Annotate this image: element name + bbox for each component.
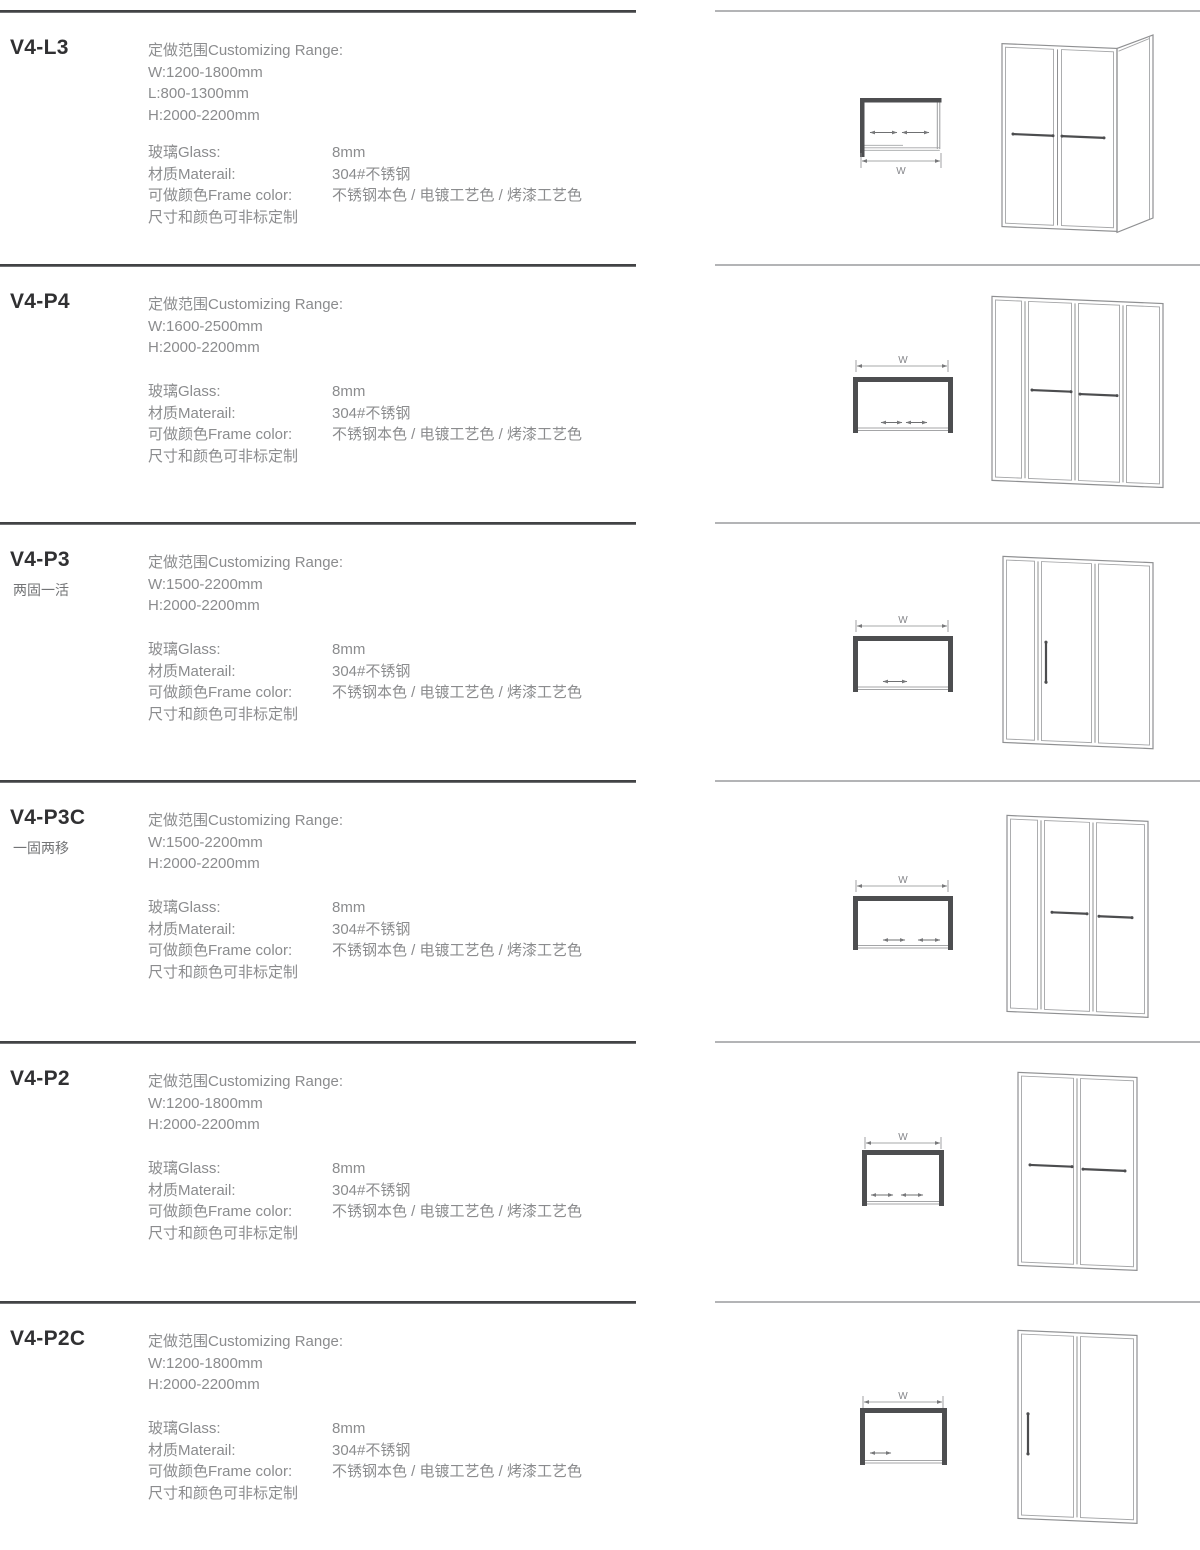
door-handle [1051,911,1134,919]
plan-door-track [865,1461,942,1464]
door-panel [1045,820,1090,1011]
plan-fixed-glass [937,103,940,150]
model-name: V4-P2C [10,1327,85,1351]
door-handle [1026,1412,1029,1455]
plan-view: W [845,352,975,442]
w-dimension-label: W [898,615,908,626]
door-panel [1079,304,1120,483]
spec-value: 8mm [332,899,365,916]
spec-row: 玻璃Glass:8mm [148,639,582,661]
spec-label: 材质Materail: [148,661,332,683]
customizing-range-label: 定做范围Customizing Range: [148,552,343,574]
dimension-range: H:2000-2200mm [148,595,343,617]
dimension-range: H:2000-2200mm [148,853,343,875]
front-door-frame [1007,815,1148,1017]
section-divider-left [0,10,636,13]
spec-row: 玻璃Glass:8mm [148,381,582,403]
front-door-frame [1018,1330,1137,1523]
front-door-frame [1002,44,1117,232]
product-section-v4-p2c: V4-P2C 定做范围Customizing Range: W:1200-180… [0,1301,1200,1550]
spec-row: 玻璃Glass:8mm [148,897,582,919]
customizing-range-label: 定做范围Customizing Range: [148,40,343,62]
w-dimension-label: W [898,1132,908,1143]
dimension-range: W:1500-2200mm [148,574,343,596]
elevation-view [1008,1323,1143,1528]
dimension-range: W:1200-1800mm [148,1093,343,1115]
door-panel [1022,1076,1074,1264]
spec-value: 不锈钢本色 / 电镀工艺色 / 烤漆工艺色 [332,1463,582,1480]
plan-wall-top [860,1408,947,1413]
fixed-panel [1011,819,1038,1009]
spec-row: 可做颜色Frame color:不锈钢本色 / 电镀工艺色 / 烤漆工艺色 [148,940,582,962]
plan-wall-left [853,896,858,950]
product-section-v4-p3c: V4-P3C 一固两移 定做范围Customizing Range: W:150… [0,780,1200,1041]
spec-value: 8mm [332,383,365,400]
spec-label: 尺寸和颜色可非标定制 [148,207,332,229]
plan-view: W [845,1128,975,1218]
model-subtitle: 两固一活 [13,580,69,600]
door-panel [1081,1337,1134,1520]
front-door-frame [1003,556,1153,748]
section-divider-right [715,264,1200,266]
w-dimension-label: W [896,166,906,177]
plan-wall-top [860,98,942,103]
spec-label: 可做颜色Frame color: [148,1201,332,1223]
door-handle [1044,641,1047,684]
spec-row: 材质Materail:304#不锈钢 [148,919,582,941]
dimension-range: W:1600-2500mm [148,316,343,338]
spec-label: 材质Materail: [148,164,332,186]
spec-row: 可做颜色Frame color:不锈钢本色 / 电镀工艺色 / 烤漆工艺色 [148,185,582,207]
spec-row: 可做颜色Frame color:不锈钢本色 / 电镀工艺色 / 烤漆工艺色 [148,682,582,704]
spec-value: 不锈钢本色 / 电镀工艺色 / 烤漆工艺色 [332,684,582,701]
customizing-range-label: 定做范围Customizing Range: [148,1331,343,1353]
dimension-range: H:2000-2200mm [148,1114,343,1136]
spec-table: 玻璃Glass:8mm 材质Materail:304#不锈钢 可做颜色Frame… [148,1418,582,1504]
customizing-range-block: 定做范围Customizing Range: W:1200-1800mm L:8… [148,40,343,126]
spec-value: 8mm [332,641,365,658]
spec-label: 尺寸和颜色可非标定制 [148,704,332,726]
plan-wall-left [853,636,858,692]
spec-value: 不锈钢本色 / 电镀工艺色 / 烤漆工艺色 [332,426,582,443]
spec-table: 玻璃Glass:8mm 材质Materail:304#不锈钢 可做颜色Frame… [148,142,582,228]
customizing-range-block: 定做范围Customizing Range: W:1500-2200mm H:2… [148,810,343,875]
spec-label: 可做颜色Frame color: [148,424,332,446]
spec-row: 玻璃Glass:8mm [148,142,582,164]
spec-value: 不锈钢本色 / 电镀工艺色 / 烤漆工艺色 [332,187,582,204]
spec-value: 8mm [332,1160,365,1177]
elevation-view [988,25,1160,240]
plan-wall-top [853,377,953,382]
spec-table: 玻璃Glass:8mm 材质Materail:304#不锈钢 可做颜色Frame… [148,639,582,725]
spec-value: 304#不锈钢 [332,166,410,183]
plan-view: W [845,85,975,177]
spec-label: 尺寸和颜色可非标定制 [148,1483,332,1505]
spec-label: 材质Materail: [148,919,332,941]
dimension-range: W:1200-1800mm [148,1353,343,1375]
spec-row: 尺寸和颜色可非标定制 [148,1223,582,1245]
section-divider-left [0,1041,636,1044]
dimension-range: W:1200-1800mm [148,62,343,84]
plan-door-track [858,428,948,431]
spec-table: 玻璃Glass:8mm 材质Materail:304#不锈钢 可做颜色Frame… [148,1158,582,1244]
dimension-range: L:800-1300mm [148,83,343,105]
spec-row: 尺寸和颜色可非标定制 [148,446,582,468]
plan-wall-top [853,896,953,901]
plan-wall-left [862,1150,867,1206]
spec-value: 304#不锈钢 [332,1442,410,1459]
spec-value: 304#不锈钢 [332,921,410,938]
plan-door-track [867,1202,939,1205]
plan-wall-left [860,98,865,157]
spec-label: 玻璃Glass: [148,142,332,164]
spec-label: 尺寸和颜色可非标定制 [148,962,332,984]
product-catalog-page: V4-L3 定做范围Customizing Range: W:1200-1800… [0,0,1200,1550]
w-dimension-label: W [898,875,908,886]
spec-value: 8mm [332,1420,365,1437]
spec-label: 可做颜色Frame color: [148,1461,332,1483]
plan-wall-right [948,636,953,692]
elevation-view [1008,1063,1143,1275]
plan-wall-left [860,1408,865,1465]
fixed-panel [1127,306,1160,484]
spec-value: 8mm [332,144,365,161]
front-door-frame [992,296,1163,487]
plan-wall-right [948,896,953,950]
fixed-panel [1007,560,1035,740]
section-divider-left [0,522,636,525]
customizing-range-block: 定做范围Customizing Range: W:1200-1800mm H:2… [148,1071,343,1136]
door-handle [1012,132,1106,139]
door-panel [1042,562,1092,743]
customizing-range-block: 定做范围Customizing Range: W:1200-1800mm H:2… [148,1331,343,1396]
spec-table: 玻璃Glass:8mm 材质Materail:304#不锈钢 可做颜色Frame… [148,897,582,983]
spec-row: 材质Materail:304#不锈钢 [148,403,582,425]
spec-row: 可做颜色Frame color:不锈钢本色 / 电镀工艺色 / 烤漆工艺色 [148,424,582,446]
section-divider-right [715,1301,1200,1303]
model-name: V4-P3 [10,548,70,572]
spec-label: 玻璃Glass: [148,1418,332,1440]
spec-label: 玻璃Glass: [148,381,332,403]
customizing-range-label: 定做范围Customizing Range: [148,1071,343,1093]
customizing-range-block: 定做范围Customizing Range: W:1500-2200mm H:2… [148,552,343,617]
plan-door-track [858,946,948,949]
dimension-range: H:2000-2200mm [148,1374,343,1396]
model-name: V4-P2 [10,1067,70,1091]
section-divider-right [715,522,1200,524]
w-dimension-label: W [898,355,908,366]
spec-row: 尺寸和颜色可非标定制 [148,207,582,229]
product-section-v4-p2: V4-P2 定做范围Customizing Range: W:1200-1800… [0,1041,1200,1301]
model-name: V4-L3 [10,36,69,60]
side-glass-panel [1117,35,1153,232]
spec-row: 玻璃Glass:8mm [148,1418,582,1440]
elevation-view [997,806,1152,1024]
model-name: V4-P4 [10,290,70,314]
spec-label: 可做颜色Frame color: [148,185,332,207]
product-section-v4-p3: V4-P3 两固一活 定做范围Customizing Range: W:1500… [0,522,1200,780]
plan-view: W [845,610,975,700]
spec-label: 玻璃Glass: [148,1158,332,1180]
section-divider-left [0,1301,636,1304]
customizing-range-label: 定做范围Customizing Range: [148,810,343,832]
spec-row: 尺寸和颜色可非标定制 [148,1483,582,1505]
plan-door-track [858,687,948,690]
section-divider-right [715,780,1200,782]
spec-row: 可做颜色Frame color:不锈钢本色 / 电镀工艺色 / 烤漆工艺色 [148,1461,582,1483]
customizing-range-block: 定做范围Customizing Range: W:1600-2500mm H:2… [148,294,343,359]
dimension-range: H:2000-2200mm [148,337,343,359]
model-name: V4-P3C [10,806,85,830]
spec-value: 304#不锈钢 [332,1182,410,1199]
spec-row: 材质Materail:304#不锈钢 [148,164,582,186]
door-panel [1022,1334,1074,1517]
plan-view: W [845,1388,975,1480]
customizing-range-label: 定做范围Customizing Range: [148,294,343,316]
spec-label: 材质Materail: [148,1180,332,1202]
plan-view: W [845,870,975,960]
spec-row: 材质Materail:304#不锈钢 [148,1180,582,1202]
plan-wall-right [939,1150,944,1206]
section-divider-left [0,264,636,267]
fixed-panel [996,300,1022,478]
spec-value: 304#不锈钢 [332,405,410,422]
w-dimension-label: W [898,1391,908,1402]
door-panel [1081,1079,1134,1267]
spec-label: 材质Materail: [148,403,332,425]
model-subtitle: 一固两移 [13,838,69,858]
dimension-range: W:1500-2200mm [148,832,343,854]
front-door-frame [1018,1072,1137,1270]
spec-row: 尺寸和颜色可非标定制 [148,962,582,984]
elevation-view [983,288,1168,493]
spec-label: 玻璃Glass: [148,639,332,661]
plan-door-track [865,145,940,150]
spec-value: 304#不锈钢 [332,663,410,680]
spec-label: 尺寸和颜色可非标定制 [148,446,332,468]
door-panel [1062,50,1114,228]
section-divider-right [715,10,1200,12]
section-divider-left [0,780,636,783]
spec-row: 材质Materail:304#不锈钢 [148,661,582,683]
spec-value: 不锈钢本色 / 电镀工艺色 / 烤漆工艺色 [332,942,582,959]
plan-wall-top [853,636,953,641]
dimension-range: H:2000-2200mm [148,105,343,127]
spec-label: 玻璃Glass: [148,897,332,919]
spec-row: 材质Materail:304#不锈钢 [148,1440,582,1462]
spec-label: 可做颜色Frame color: [148,940,332,962]
plan-wall-right [942,1408,947,1465]
plan-wall-left [853,377,858,433]
product-section-v4-p4: V4-P4 定做范围Customizing Range: W:1600-2500… [0,264,1200,522]
spec-row: 可做颜色Frame color:不锈钢本色 / 电镀工艺色 / 烤漆工艺色 [148,1201,582,1223]
product-section-v4-l3: V4-L3 定做范围Customizing Range: W:1200-1800… [0,10,1200,264]
spec-value: 不锈钢本色 / 电镀工艺色 / 烤漆工艺色 [332,1203,582,1220]
spec-table: 玻璃Glass:8mm 材质Materail:304#不锈钢 可做颜色Frame… [148,381,582,467]
fixed-panel [1099,564,1150,745]
spec-label: 材质Materail: [148,1440,332,1462]
plan-wall-right [948,377,953,433]
elevation-view [993,548,1158,756]
plan-wall-top [862,1150,944,1155]
section-divider-right [715,1041,1200,1043]
spec-label: 可做颜色Frame color: [148,682,332,704]
spec-row: 尺寸和颜色可非标定制 [148,704,582,726]
spec-label: 尺寸和颜色可非标定制 [148,1223,332,1245]
spec-row: 玻璃Glass:8mm [148,1158,582,1180]
